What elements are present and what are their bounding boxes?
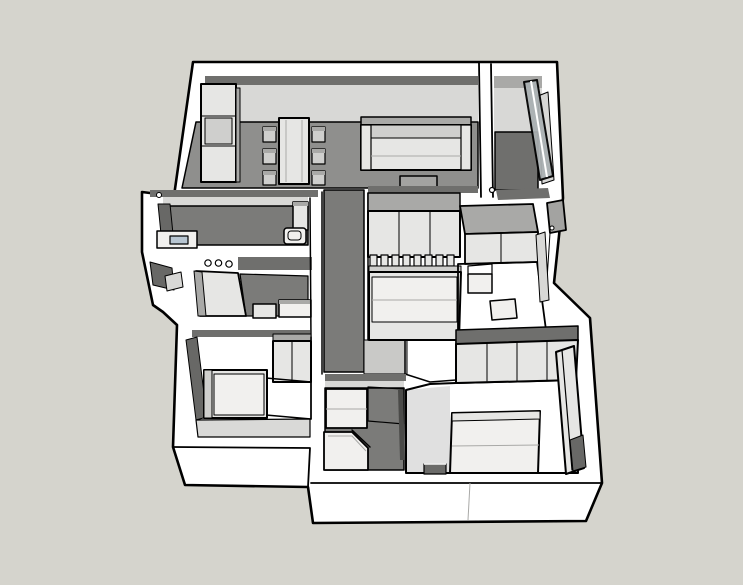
bath1-wall-inner xyxy=(163,197,308,206)
sofa xyxy=(361,117,471,170)
bath1-wall-top xyxy=(150,190,318,197)
bath1-mirror xyxy=(158,204,173,234)
front-door xyxy=(547,200,566,233)
bath1-cabinet xyxy=(293,202,308,230)
balcony-floor xyxy=(495,132,538,190)
entry-closet-top xyxy=(460,204,538,234)
floorplan-canvas xyxy=(0,0,743,585)
ceiling-light-2 xyxy=(215,260,221,266)
bedroom3-wardrobe-top xyxy=(273,334,311,341)
bed-slat-headboard xyxy=(369,255,461,272)
3d-viewport[interactable] xyxy=(0,0,743,585)
room-kitchen-dining-living xyxy=(182,76,478,188)
dining-table xyxy=(279,118,309,184)
hall-floor-light xyxy=(364,340,407,374)
tv-console xyxy=(400,176,437,187)
ensuite-wall-top xyxy=(325,374,406,381)
front-door-handle xyxy=(550,226,554,230)
wardrobe-top-face xyxy=(368,193,460,211)
entry-stool xyxy=(468,264,492,293)
bath1-door-marker xyxy=(157,193,162,198)
kitchen-cabinets xyxy=(201,84,240,182)
corridor-floor xyxy=(324,190,364,372)
bedroom3-south-floor xyxy=(196,419,310,437)
bedroom2-wall-top xyxy=(368,186,478,193)
master-floor-shadow xyxy=(406,386,450,473)
bedroom3-bed xyxy=(204,370,267,418)
wardrobe-front xyxy=(368,211,460,257)
balcony-door-handle xyxy=(490,188,495,193)
bath1-sink xyxy=(170,236,188,244)
ensuite-wall-inner xyxy=(325,381,404,388)
ceiling-light-3 xyxy=(226,261,232,267)
master-bed xyxy=(450,411,540,473)
entry-north-wall-top xyxy=(496,188,550,200)
bath2-wall-top xyxy=(238,257,312,270)
dining-table-set xyxy=(263,118,325,185)
bay-window-pane xyxy=(165,272,183,291)
master-bench xyxy=(424,464,446,474)
room-bathroom-1 xyxy=(150,190,318,248)
ceiling-light-1 xyxy=(205,260,211,266)
entry-side-table xyxy=(490,299,517,320)
north-wall-top-face xyxy=(205,76,478,85)
room-ensuite-bathroom xyxy=(324,374,406,470)
bath2-toilet xyxy=(253,304,276,318)
